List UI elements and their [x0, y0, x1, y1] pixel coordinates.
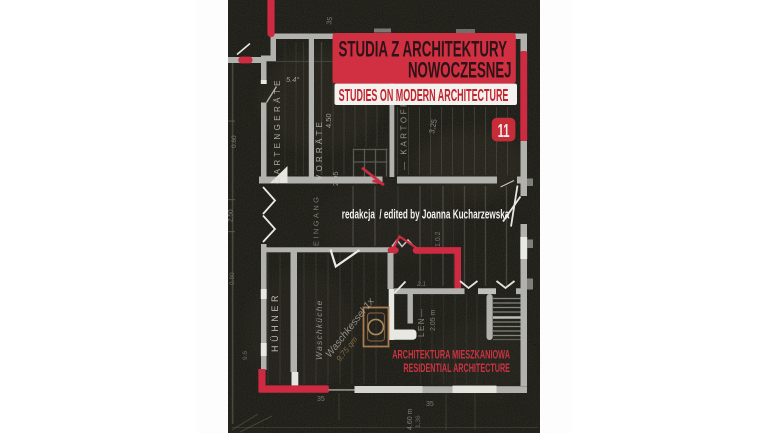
svg-text:HÜHNER: HÜHNER — [270, 292, 280, 352]
svg-text:35: 35 — [317, 396, 325, 403]
svg-text:35: 35 — [326, 16, 334, 25]
svg-text:redakcja / edited by Joanna K: redakcja / edited by Joanna Kucharzewska — [342, 207, 510, 221]
svg-text:9.6: 9.6 — [242, 351, 249, 360]
svg-text:EINGANG: EINGANG — [312, 195, 321, 246]
svg-text:LEN—: LEN— — [417, 307, 426, 337]
svg-text:GARTENGERÄTE: GARTENGERÄTE — [273, 77, 282, 184]
svg-text:2,1: 2,1 — [416, 281, 426, 288]
svg-text:VORRÄTE: VORRÄTE — [315, 119, 324, 180]
svg-text:1,36: 1,36 — [415, 415, 422, 428]
svg-text:RESIDENTIAL ARCHITECTURE: RESIDENTIAL ARCHITECTURE — [403, 361, 510, 375]
svg-text:5.4°: 5.4° — [286, 75, 299, 84]
svg-text:0.60: 0.60 — [231, 135, 238, 148]
svg-text:Waschküche: Waschküche — [314, 299, 324, 360]
svg-text:2,50: 2,50 — [228, 209, 235, 222]
svg-text:2.05 m: 2.05 m — [430, 309, 437, 331]
svg-text:4.50: 4.50 — [324, 113, 333, 128]
svg-text:STUDIES ON MODERN ARCHITECTURE: STUDIES ON MODERN ARCHITECTURE — [339, 85, 509, 105]
svg-text:— KARTOFF.: — KARTOFF. — [400, 95, 409, 170]
svg-text:11: 11 — [498, 121, 510, 141]
svg-text:1.0.2: 1.0.2 — [435, 231, 442, 247]
svg-text:0.80: 0.80 — [229, 272, 236, 285]
svg-text:35: 35 — [426, 401, 434, 408]
svg-text:NOWOCZESNEJ: NOWOCZESNEJ — [408, 58, 512, 83]
svg-text:4.60 m: 4.60 m — [407, 408, 414, 430]
svg-text:ARCHITEKTURA MIESZKANIOWA: ARCHITEKTURA MIESZKANIOWA — [392, 347, 510, 361]
svg-text:2.05: 2.05 — [331, 171, 340, 186]
